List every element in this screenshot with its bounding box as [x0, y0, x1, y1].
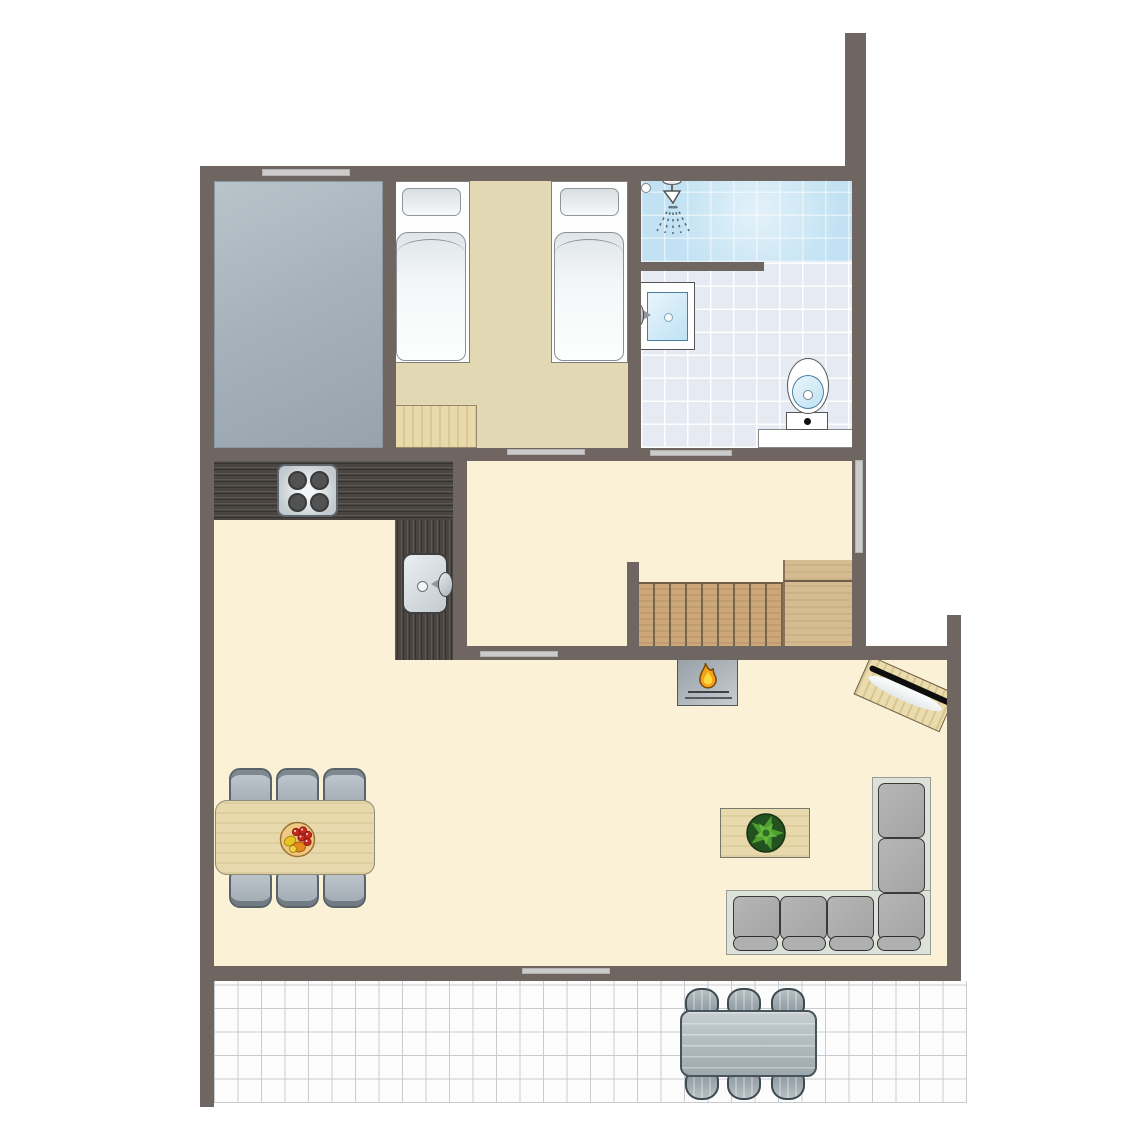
gray-room-floor [214, 181, 383, 448]
plant-icon [740, 807, 792, 859]
bed-left-blanket-line [397, 239, 465, 253]
sofa-seat-edge [877, 936, 921, 951]
stove-burner [310, 471, 329, 490]
bathroom-faucet-spout [643, 310, 651, 320]
fireplace-vent-line [685, 697, 732, 699]
bed-right-pillow [560, 188, 619, 216]
kitchen-sink-drain [417, 581, 428, 592]
sofa-cushion [878, 838, 925, 893]
fireplace-vent-line [688, 691, 729, 693]
wall-living-right [947, 615, 961, 981]
terrace-floor [214, 981, 967, 1103]
toilet-drain [803, 390, 813, 400]
bed-right [551, 181, 628, 363]
stove [277, 464, 338, 517]
kitchen-faucet [438, 572, 453, 597]
bed-right-mattress [554, 232, 624, 361]
flame-icon [695, 662, 721, 690]
sofa-cushion [780, 896, 827, 940]
window-right [855, 460, 863, 553]
wall-stair-stub [627, 562, 639, 650]
stove-burner [288, 493, 307, 512]
toilet-button [804, 418, 811, 425]
door-bathroom [650, 450, 732, 456]
sofa-cushion [733, 896, 780, 940]
door-hall-living [480, 651, 558, 657]
garden-table [680, 1010, 817, 1077]
bed-left-mattress [396, 232, 466, 361]
bathroom-sink-basin [647, 292, 688, 341]
shower-head-icon [648, 174, 700, 238]
wall-bedroom-bathroom [628, 181, 641, 448]
sofa-seat-edge [782, 936, 826, 951]
bed-left-pillow [402, 188, 461, 216]
sofa-cushion [878, 783, 925, 838]
fireplace [677, 659, 738, 706]
bed-left [393, 181, 470, 363]
sofa-cushion-corner [878, 893, 925, 940]
wall-grayroom-right [383, 181, 396, 448]
stove-burner [310, 493, 329, 512]
staircase-steps [639, 582, 783, 650]
fruit-bowl-icon [279, 821, 316, 858]
floor-plan-canvas [0, 0, 1145, 1145]
staircase-landing [783, 560, 852, 650]
wall-right-upper [852, 181, 866, 658]
sofa-seat-edge [829, 936, 874, 951]
sofa-seat-edge [733, 936, 778, 951]
bathroom-sink-drain [664, 313, 673, 322]
wall-shower-partition [641, 262, 764, 271]
toilet-shelf [758, 429, 853, 448]
staircase-landing-line [783, 580, 852, 582]
bedroom-cabinet [393, 405, 477, 448]
door-terrace [522, 968, 610, 974]
sofa-cushion [827, 896, 874, 940]
bed-right-blanket-line [555, 239, 623, 253]
wall-kitchen-hall [453, 448, 467, 659]
wall-top-right-stub [845, 33, 866, 181]
window-top [262, 169, 350, 176]
stove-burner [288, 471, 307, 490]
door-bedroom [507, 449, 585, 455]
